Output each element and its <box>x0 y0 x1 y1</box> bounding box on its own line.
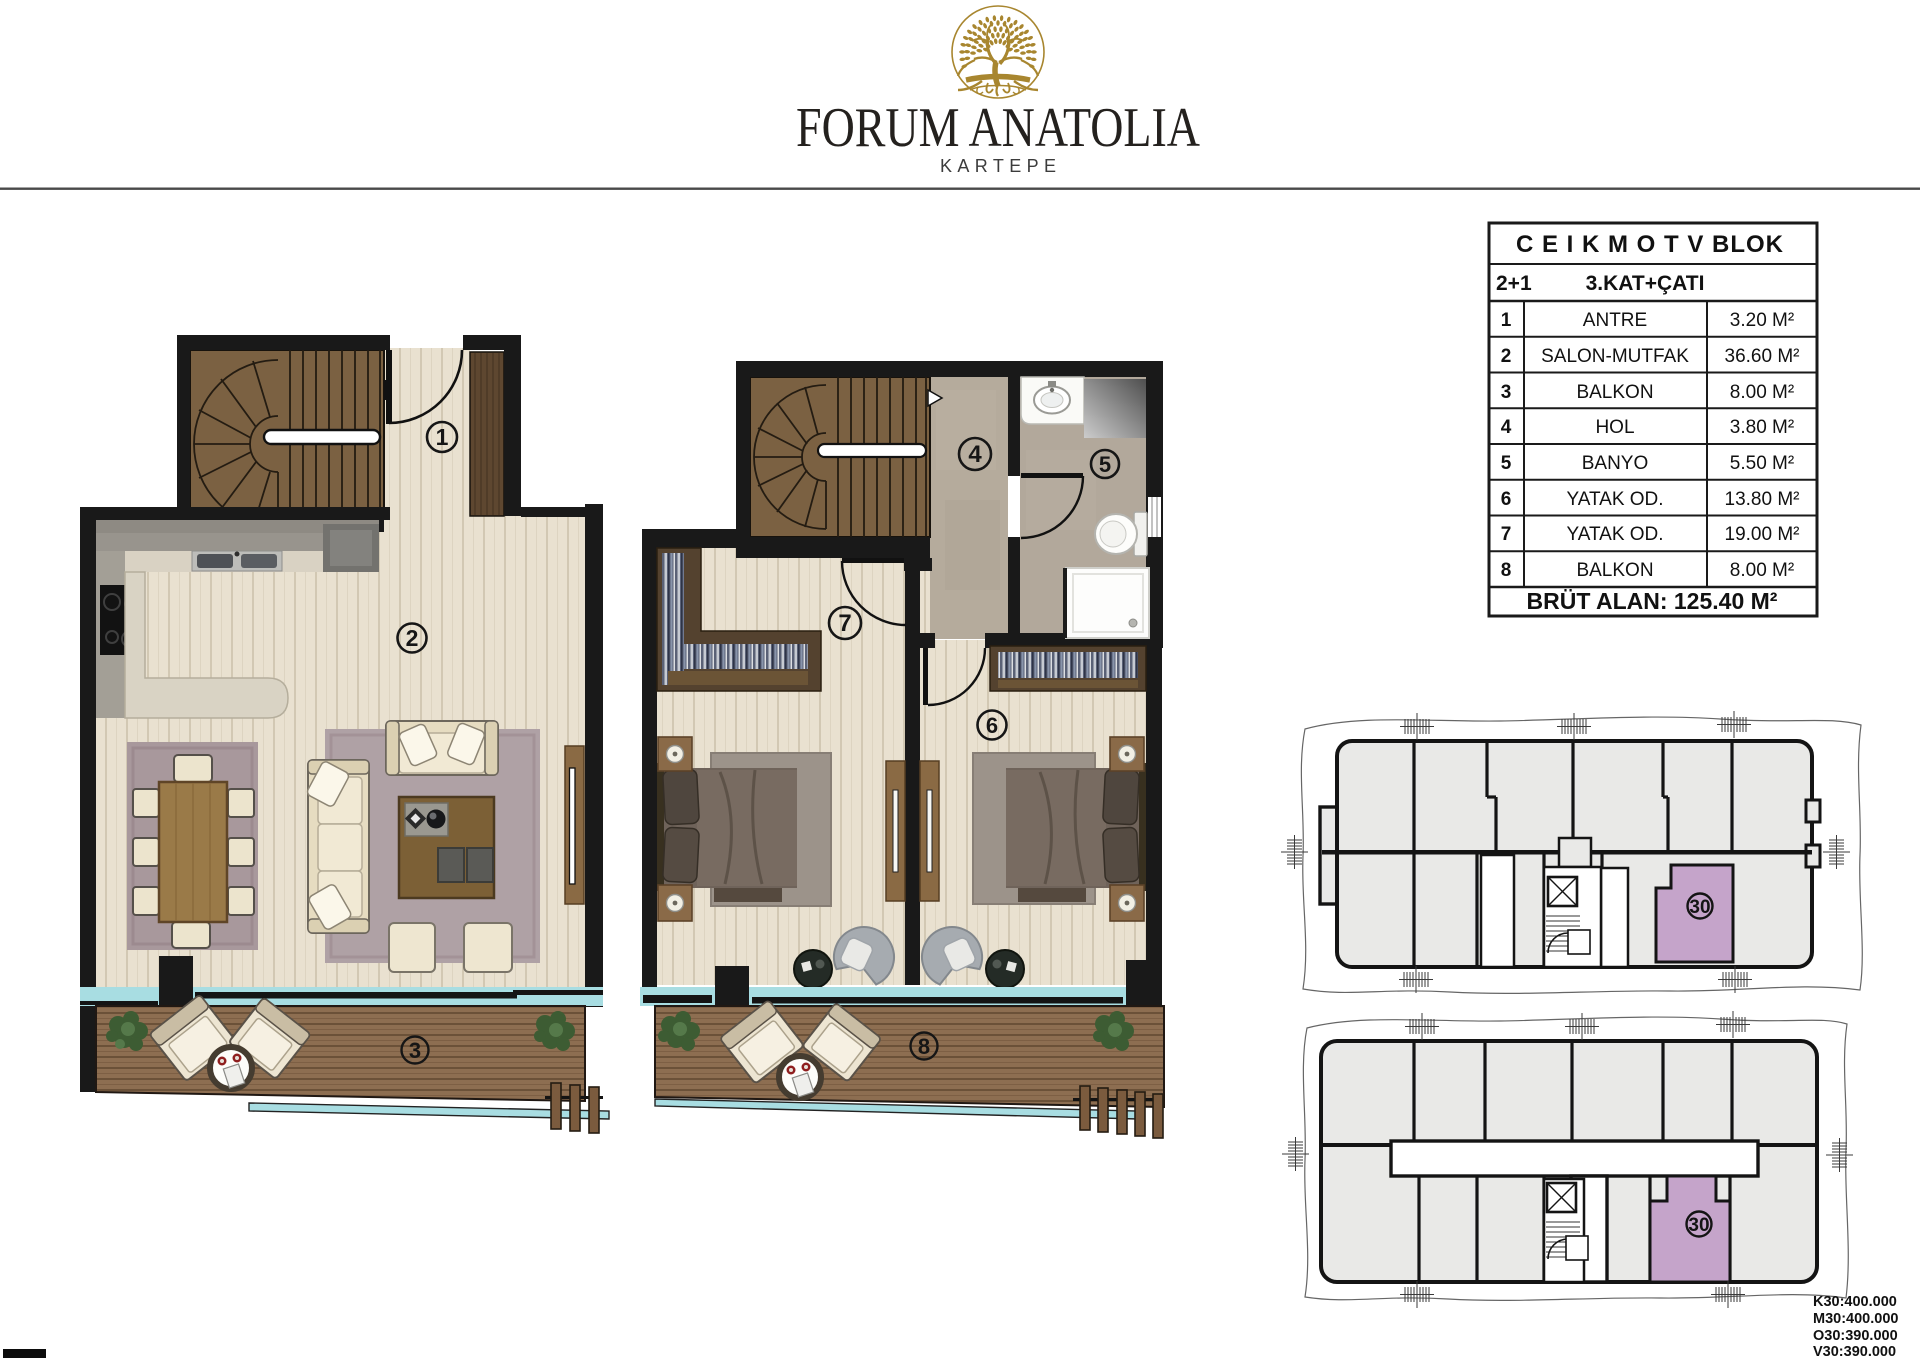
svg-text:C E I K M O T V BLOK: C E I K M O T V BLOK <box>1516 231 1784 258</box>
svg-text:ANTRE: ANTRE <box>1583 310 1647 331</box>
svg-text:YATAK OD.: YATAK OD. <box>1566 489 1663 510</box>
svg-text:7: 7 <box>1501 524 1512 545</box>
svg-text:2: 2 <box>1501 346 1512 367</box>
svg-text:7: 7 <box>838 610 851 637</box>
svg-text:3: 3 <box>1501 382 1512 403</box>
svg-text:36.60 M²: 36.60 M² <box>1725 346 1800 367</box>
svg-text:30: 30 <box>1688 1215 1709 1236</box>
svg-text:3: 3 <box>409 1038 421 1063</box>
svg-text:BALKON: BALKON <box>1576 382 1653 403</box>
svg-text:5: 5 <box>1099 452 1111 477</box>
svg-text:BRÜT ALAN: 125.40 M²: BRÜT ALAN: 125.40 M² <box>1527 588 1778 614</box>
svg-text:SALON-MUTFAK: SALON-MUTFAK <box>1541 346 1689 367</box>
svg-text:BANYO: BANYO <box>1582 453 1649 474</box>
svg-text:8: 8 <box>1501 560 1512 581</box>
svg-text:8.00 M²: 8.00 M² <box>1730 382 1794 403</box>
svg-text:3.80 M²: 3.80 M² <box>1730 417 1794 438</box>
svg-text:6: 6 <box>986 713 998 738</box>
svg-text:8.00 M²: 8.00 M² <box>1730 560 1794 581</box>
svg-text:6: 6 <box>1501 489 1512 510</box>
svg-text:KARTEPE: KARTEPE <box>940 156 1056 176</box>
svg-text:BALKON: BALKON <box>1576 560 1653 581</box>
svg-text:O30:390.000: O30:390.000 <box>1813 1328 1898 1344</box>
svg-text:V30:390.000: V30:390.000 <box>1813 1344 1896 1358</box>
svg-text:13.80 M²: 13.80 M² <box>1725 489 1800 510</box>
svg-text:1: 1 <box>1501 310 1512 331</box>
svg-text:5: 5 <box>1501 453 1512 474</box>
svg-text:FORUM ANATOLIA: FORUM ANATOLIA <box>796 97 1200 159</box>
svg-text:1: 1 <box>436 424 449 450</box>
svg-text:YATAK OD.: YATAK OD. <box>1566 524 1663 545</box>
svg-text:M30:400.000: M30:400.000 <box>1813 1311 1898 1327</box>
svg-text:K30:400.000: K30:400.000 <box>1813 1294 1897 1310</box>
svg-text:5.50 M²: 5.50 M² <box>1730 453 1794 474</box>
svg-text:HOL: HOL <box>1595 417 1634 438</box>
svg-text:19.00 M²: 19.00 M² <box>1725 524 1800 545</box>
svg-text:8: 8 <box>918 1034 930 1059</box>
svg-text:2+1: 2+1 <box>1496 272 1532 295</box>
svg-text:3.KAT+ÇATI: 3.KAT+ÇATI <box>1586 272 1705 295</box>
svg-text:4: 4 <box>1501 417 1512 438</box>
svg-text:4: 4 <box>968 441 982 468</box>
svg-text:3.20 M²: 3.20 M² <box>1730 310 1794 331</box>
svg-text:30: 30 <box>1689 897 1710 918</box>
svg-text:2: 2 <box>406 625 419 651</box>
